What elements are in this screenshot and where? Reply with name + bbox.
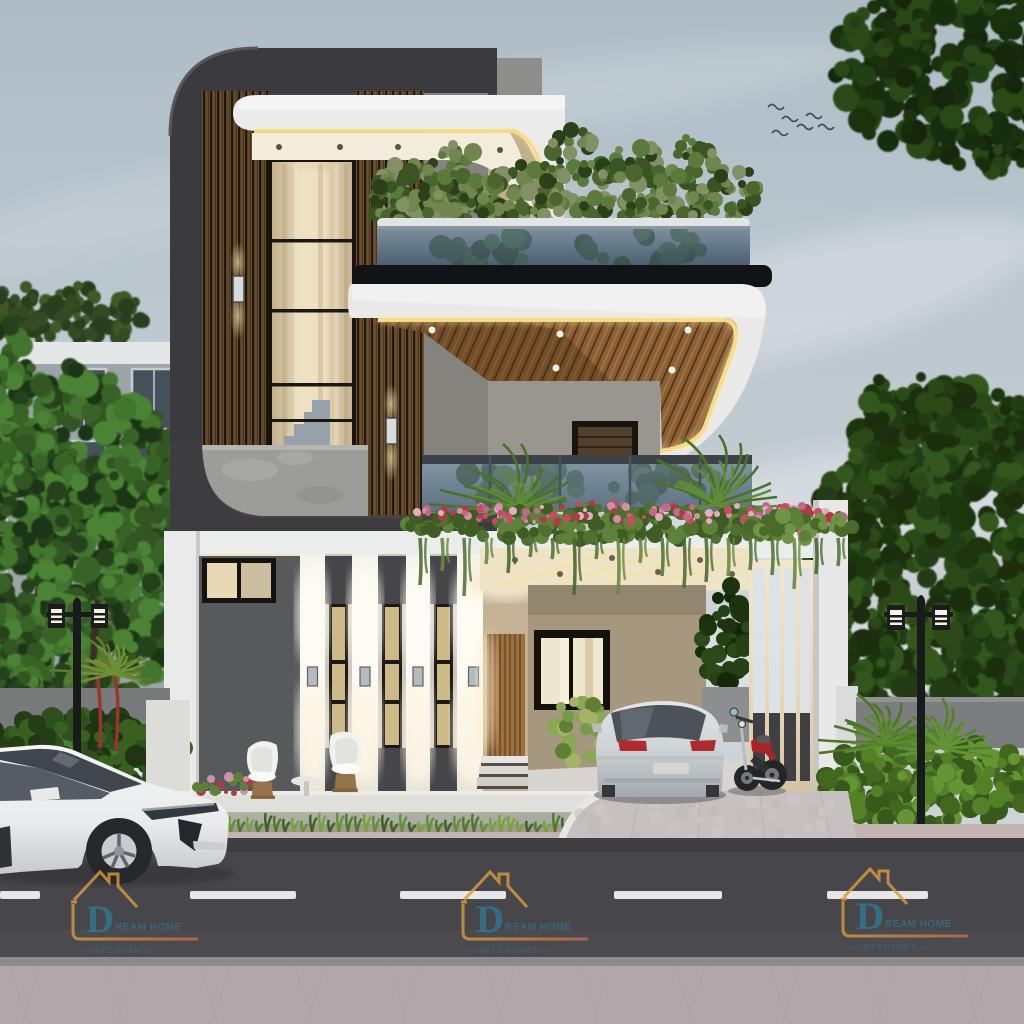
svg-text:—INTERIORS—: —INTERIORS— — [79, 945, 159, 955]
svg-text:REAM HOME: REAM HOME — [115, 922, 182, 933]
svg-text:D: D — [856, 895, 884, 938]
svg-text:REAM HOME: REAM HOME — [885, 919, 952, 930]
svg-text:REAM HOME: REAM HOME — [505, 922, 572, 933]
svg-text:—INTERIORS—: —INTERIORS— — [469, 945, 549, 955]
svg-text:—INTERIORS—: —INTERIORS— — [849, 942, 929, 952]
svg-text:D: D — [86, 898, 114, 941]
svg-text:D: D — [476, 898, 504, 941]
